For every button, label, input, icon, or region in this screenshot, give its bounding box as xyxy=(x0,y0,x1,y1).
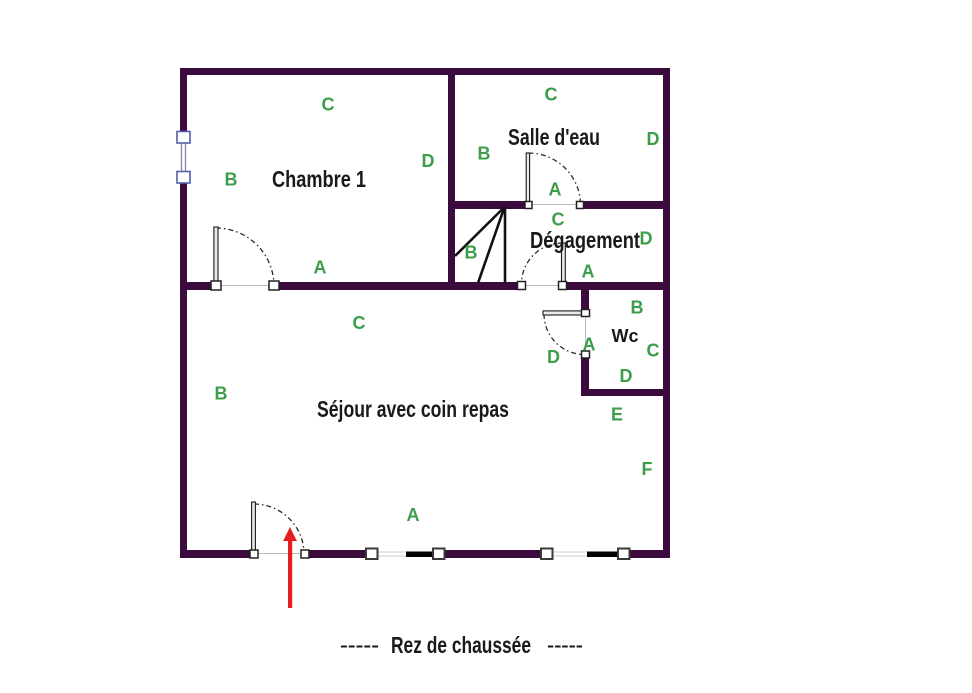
svg-text:Séjour avec coin repas: Séjour avec coin repas xyxy=(317,396,509,422)
svg-text:F: F xyxy=(642,459,653,479)
svg-text:A: A xyxy=(314,258,327,278)
svg-text:A: A xyxy=(583,335,596,355)
svg-text:B: B xyxy=(225,170,238,190)
svg-text:C: C xyxy=(552,210,565,230)
svg-text:Wc: Wc xyxy=(612,326,639,346)
svg-text:C: C xyxy=(322,95,335,115)
svg-text:Salle d'eau: Salle d'eau xyxy=(508,124,600,150)
svg-text:A: A xyxy=(549,180,562,200)
svg-text:-----: ----- xyxy=(340,636,379,655)
svg-text:D: D xyxy=(620,366,633,386)
svg-text:B: B xyxy=(215,384,228,404)
svg-text:B: B xyxy=(478,144,491,164)
svg-text:C: C xyxy=(353,313,366,333)
svg-text:A: A xyxy=(407,505,420,525)
svg-text:D: D xyxy=(640,229,653,249)
svg-text:Rez de chaussée: Rez de chaussée xyxy=(391,632,531,658)
svg-text:Chambre 1: Chambre 1 xyxy=(272,166,366,192)
svg-text:D: D xyxy=(647,129,660,149)
svg-text:-----: ----- xyxy=(547,636,583,655)
svg-text:D: D xyxy=(422,151,435,171)
svg-text:E: E xyxy=(611,405,623,425)
svg-text:B: B xyxy=(631,298,644,318)
svg-text:B: B xyxy=(465,243,478,263)
svg-text:C: C xyxy=(545,85,558,105)
svg-text:A: A xyxy=(582,262,595,282)
svg-text:Dégagement: Dégagement xyxy=(530,227,640,253)
svg-text:C: C xyxy=(647,341,660,361)
svg-text:D: D xyxy=(547,347,560,367)
